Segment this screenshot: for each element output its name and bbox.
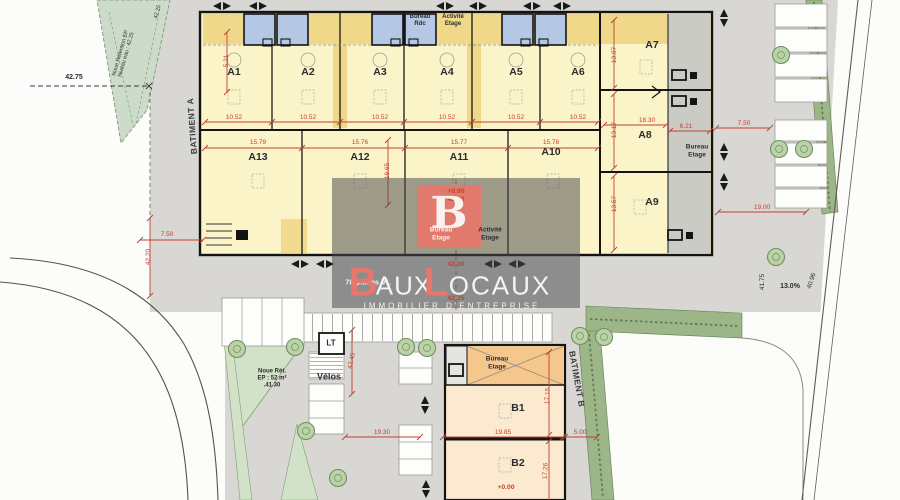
site-plan-drawing (0, 0, 900, 500)
watermark-logo-square (417, 185, 481, 248)
building-b (445, 345, 565, 500)
watermark (332, 178, 580, 308)
site-plan: A1A2A3A4A5A6A7A8A9A13A12A11A10B1B2Bureau… (0, 0, 900, 500)
south-east-plot (598, 334, 804, 500)
office-mezzanine-boxes (244, 14, 566, 45)
building-a-office-strip (668, 14, 710, 253)
lt-box (319, 333, 344, 354)
